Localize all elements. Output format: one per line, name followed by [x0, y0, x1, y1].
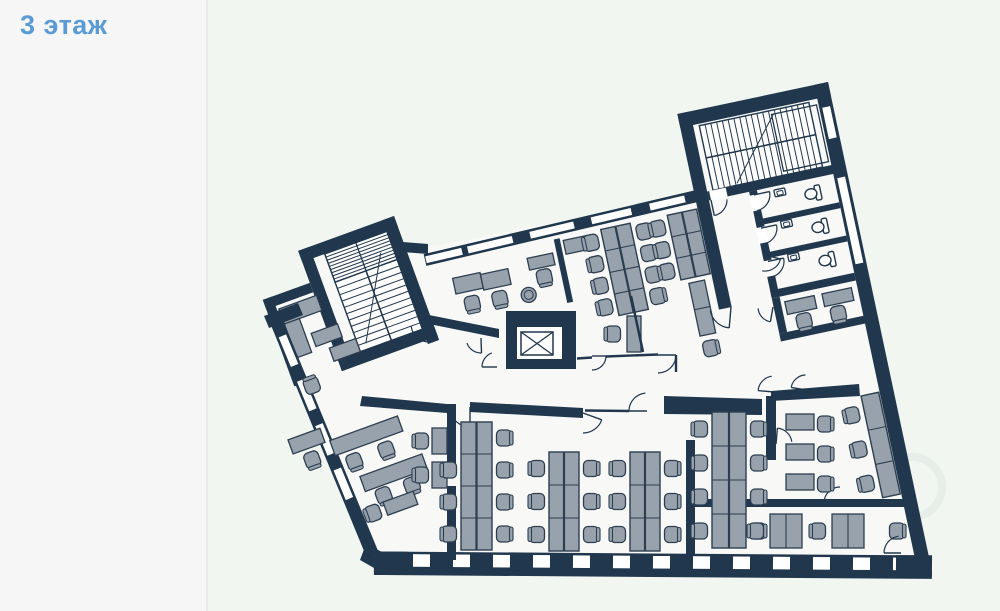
svg-text:3 этаж: 3 этаж	[20, 10, 108, 40]
